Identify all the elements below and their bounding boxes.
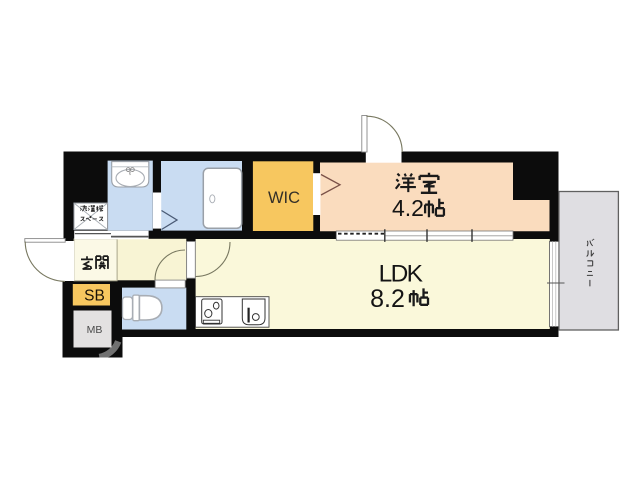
svg-text:LDK: LDK — [379, 261, 424, 288]
svg-text:WIC: WIC — [268, 189, 300, 207]
svg-text:8.2: 8.2 — [370, 285, 405, 313]
svg-text:SB: SB — [84, 287, 105, 304]
svg-text:MB: MB — [87, 324, 103, 336]
svg-text:4.2: 4.2 — [392, 195, 424, 221]
